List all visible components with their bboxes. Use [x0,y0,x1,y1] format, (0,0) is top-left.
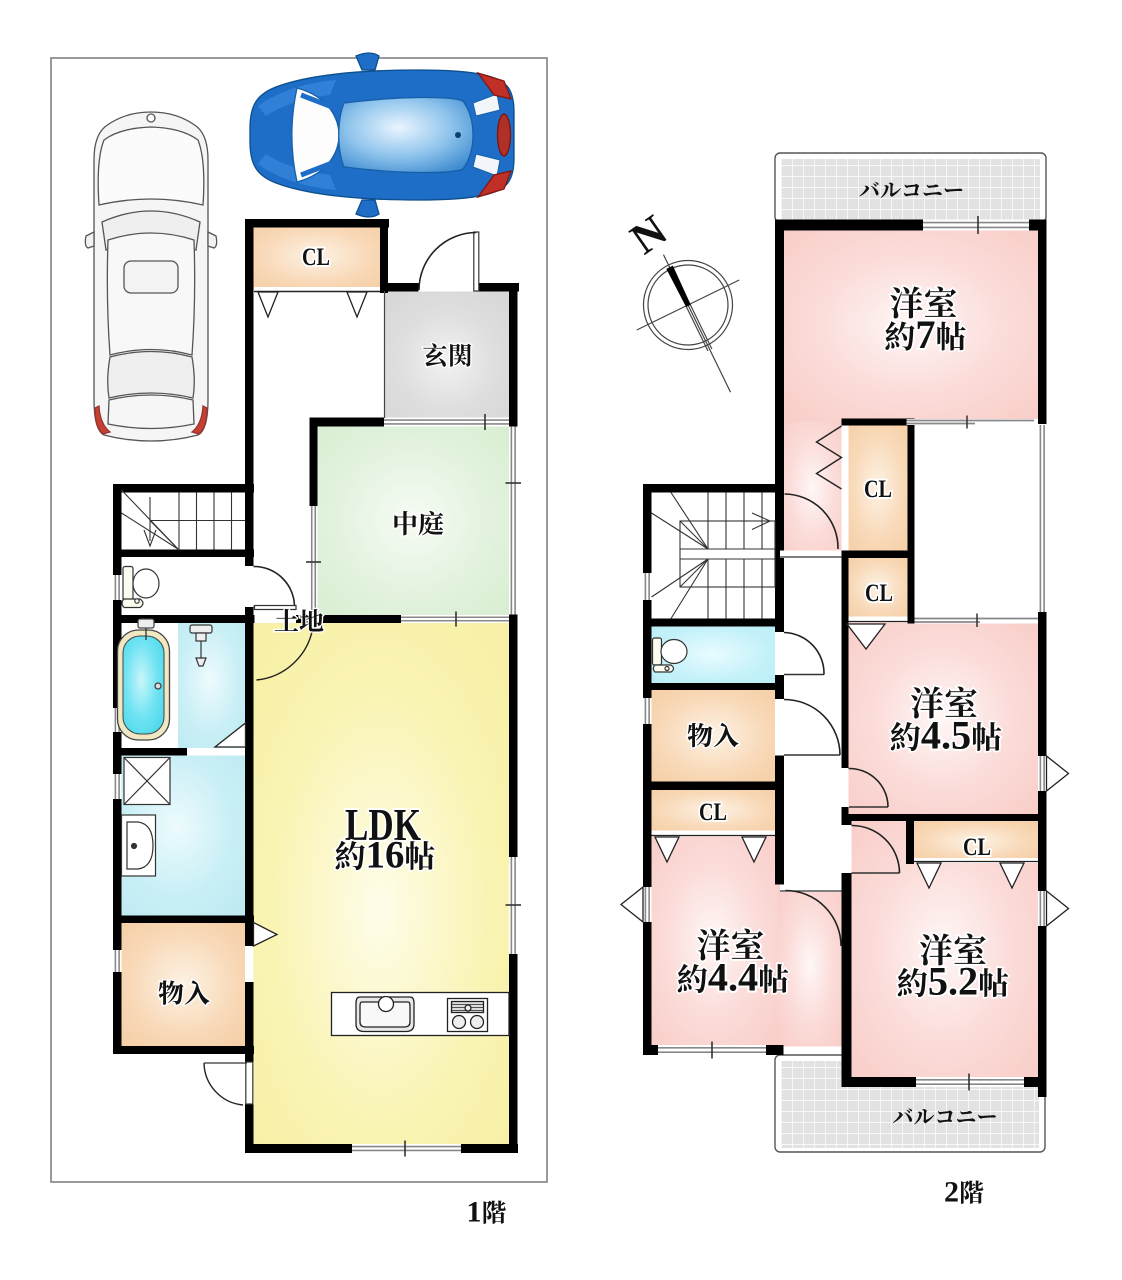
svg-text:CL: CL [302,244,330,271]
svg-text:5.2: 5.2 [928,958,978,1003]
svg-text:4.4: 4.4 [708,954,758,999]
svg-text:16: 16 [366,833,405,876]
svg-text:4.5: 4.5 [921,712,971,757]
svg-text:7: 7 [915,312,935,357]
svg-text:CL: CL [963,834,991,861]
svg-text:1: 1 [467,1196,482,1229]
svg-text:2: 2 [944,1176,959,1209]
svg-text:N: N [622,205,676,263]
svg-text:CL: CL [865,580,893,607]
svg-text:CL: CL [864,476,892,503]
svg-text:CL: CL [699,799,727,826]
